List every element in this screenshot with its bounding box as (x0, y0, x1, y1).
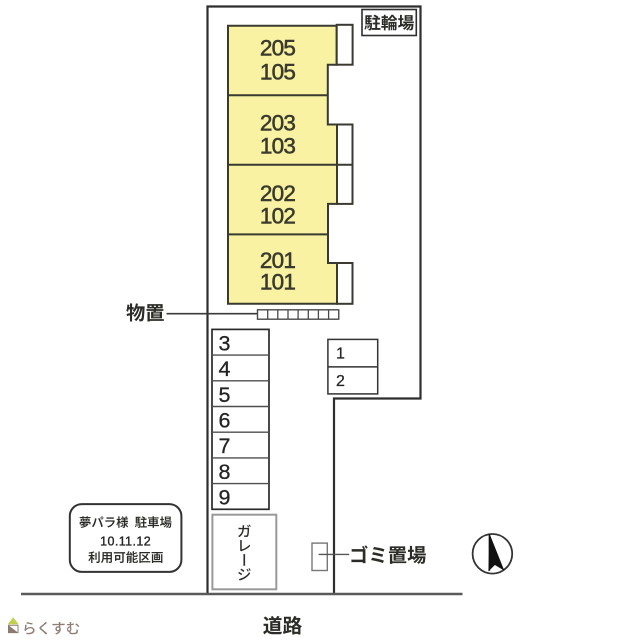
svg-text:101: 101 (260, 270, 295, 295)
svg-text:10.11.12: 10.11.12 (100, 535, 151, 549)
svg-text:3: 3 (219, 331, 231, 355)
svg-text:4: 4 (219, 357, 231, 381)
svg-text:9: 9 (219, 486, 231, 510)
svg-text:205: 205 (260, 35, 295, 60)
svg-text:103: 103 (260, 134, 295, 159)
svg-text:7: 7 (219, 434, 231, 458)
svg-text:202: 202 (260, 181, 295, 206)
svg-text:1: 1 (336, 346, 345, 363)
svg-text:2: 2 (336, 373, 345, 390)
svg-text:6: 6 (219, 409, 231, 433)
svg-text:105: 105 (260, 59, 295, 84)
svg-text:102: 102 (260, 204, 295, 229)
svg-text:5: 5 (219, 383, 231, 407)
svg-text:8: 8 (219, 460, 231, 484)
svg-text:203: 203 (260, 110, 295, 135)
